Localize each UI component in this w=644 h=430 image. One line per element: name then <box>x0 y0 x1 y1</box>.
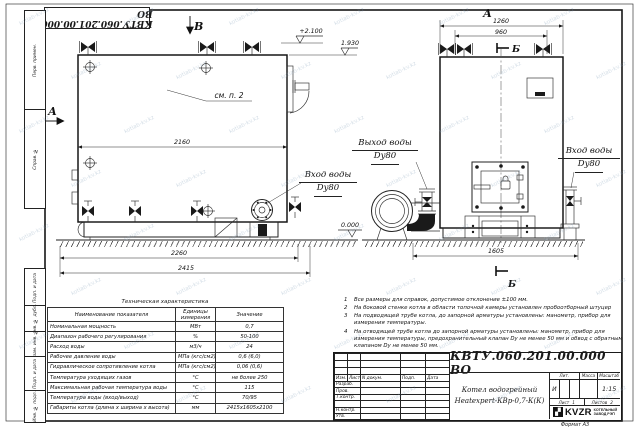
dim-side-base: 1605 <box>488 248 504 255</box>
door-hinge-icon <box>517 175 523 180</box>
view-b-label: В <box>193 20 203 33</box>
view-a-left-label: А <box>47 105 57 118</box>
note-item: 4На отводящей трубе котла до запорной ар… <box>344 329 626 350</box>
margin-box: Подп. и дата <box>24 268 46 307</box>
side-base <box>443 216 560 238</box>
lifting-mark-icon <box>83 60 97 74</box>
mass-label: Масса <box>580 373 599 379</box>
dim-side-top: 1260 <box>493 18 509 25</box>
lit-cell <box>570 380 580 398</box>
doc-number: КВТУ.060.201.00.000 ВО <box>449 353 620 373</box>
logo-text: KVZR <box>565 407 592 418</box>
margin-box: Инв. № подл. <box>24 390 46 423</box>
margin-box: Перв. примен. <box>24 10 46 111</box>
sheet-value: 1 <box>572 400 575 405</box>
drawing-sheet: 2160 2260 2415 +2.100 1.930 0.000 см. п. <box>0 0 644 430</box>
table-row: Номинальная мощностьМВт0,7 <box>48 322 284 332</box>
product-name-line1: Котел водогрейный <box>462 385 538 396</box>
section-b-top-label: Б <box>511 44 520 55</box>
format-label: Формат А3 <box>528 422 622 428</box>
drain-valve-icon <box>191 201 203 222</box>
tech-col-header: Значение <box>216 308 284 322</box>
revision-row <box>335 361 450 368</box>
sheets-value: 2 <box>610 400 613 405</box>
drain-valve-icon <box>129 201 141 222</box>
tech-table-title: Техническая характеристика <box>47 299 283 305</box>
rev-col: Подп. <box>401 375 426 382</box>
margin-label: Справ. № <box>33 148 38 170</box>
scale-value: 1:15 <box>598 380 620 398</box>
table-row: Температура уходящих газов°Сне более 250 <box>48 372 284 382</box>
inlet-side-label: Вход воды Dy80 <box>558 146 620 173</box>
rev-col: Дата <box>426 375 450 382</box>
see-note-callout: см. п. 2 <box>215 91 244 100</box>
dim-front-top: 2160 <box>174 139 190 146</box>
lifting-mark-icon <box>201 204 215 218</box>
section-b-bottom-label: Б <box>507 279 516 290</box>
sheet-label: Лист <box>559 400 570 405</box>
corner-stamp: КВТУ.060.201.00.000 ВО <box>44 7 150 29</box>
lit-value: И <box>550 380 560 398</box>
port-label-title: Вход воды <box>299 170 357 183</box>
port-label-dn: Dy80 <box>371 151 399 164</box>
table-row: Габариты котла (длина х ширина х высота)… <box>48 403 284 413</box>
safety-fitting-icon <box>456 43 473 57</box>
margin-label: Инв. № подл. <box>33 391 38 422</box>
dim-front-total: 2415 <box>178 265 194 272</box>
elevation-mark: +2.100 <box>281 28 323 43</box>
revision-row <box>335 354 450 361</box>
lifting-mark-icon <box>199 61 213 75</box>
lit-cell <box>560 380 570 398</box>
revision-row <box>335 368 450 375</box>
port-label-dn: Dy80 <box>314 183 342 196</box>
tech-table-header-row: Наименование показателя Единицы измерени… <box>48 308 284 322</box>
title-block-signatures: Изм. Лист N докум. Подп. Дата Разраб. Пр… <box>334 353 449 420</box>
port-label-title: Вход воды <box>558 146 620 159</box>
table-row: Расход водым3/ч24 <box>48 342 284 352</box>
note-item: 2На боковой стенке котла в области топоч… <box>344 305 626 312</box>
safety-fitting-icon <box>199 41 216 55</box>
sign-row: Утв. <box>335 413 450 419</box>
product-name: Котел водогрейный Heatexpert-КВр-0,7-К(К… <box>449 373 549 419</box>
dim-side-inner: 960 <box>495 29 507 36</box>
mass-value <box>580 380 599 398</box>
port-label-title: Выход воды <box>352 138 418 151</box>
margin-label: Перв. примен. <box>33 44 38 77</box>
safety-fitting-icon <box>80 41 97 55</box>
outlet-pipe <box>407 189 436 231</box>
view-a-top-label: А <box>482 7 492 20</box>
elevation-flue: 1.930 <box>341 40 359 47</box>
door-hinge-icon <box>517 194 523 199</box>
scale-label: Масштаб <box>598 373 620 379</box>
elevation-mark: 0.000 <box>338 222 362 237</box>
corner-stamp-text: КВТУ.060.201.00.000 ВО <box>41 8 152 28</box>
margin-box: Взам. инв. № <box>24 331 46 358</box>
safety-fitting-icon <box>535 43 552 57</box>
rev-col: Изм. <box>335 375 348 382</box>
title-block: Изм. Лист N докум. Подп. Дата Разраб. Пр… <box>333 352 622 421</box>
port-label-dn: Dy80 <box>575 159 603 172</box>
inlet-front-label: Вход воды Dy80 <box>299 170 357 197</box>
note-item: 3На подводящей трубе котла, до запорной … <box>344 313 626 327</box>
inlet-flange-icon <box>252 200 273 221</box>
elevation-zero: 0.000 <box>341 222 359 229</box>
logo-subtext: ЗАВОД РЭП <box>594 412 617 416</box>
margin-label: Подп. и дата <box>33 359 38 389</box>
note-item: 1Все размеры для справок, допустимое отк… <box>344 297 626 304</box>
lifting-mark-icon <box>83 156 97 170</box>
table-row: Гидравлическое сопротивление котлаМПа (к… <box>48 362 284 372</box>
logo-icon: ▞ <box>553 407 563 417</box>
door-handle-icon <box>474 185 490 189</box>
flue-outlet <box>287 66 309 113</box>
tech-col-header: Наименование показателя <box>48 308 176 322</box>
rev-col: N докум. <box>361 375 401 382</box>
lit-label: Лит. <box>550 373 580 379</box>
safety-fitting-icon <box>439 43 456 57</box>
ground-hatch <box>363 241 583 247</box>
notes-list: 1Все размеры для справок, допустимое отк… <box>344 297 626 351</box>
sheets-cell: Листов 2 <box>585 399 620 405</box>
title-block-right: Лит. Масса Масштаб И 1:15 Лист 1 Листов … <box>549 373 620 419</box>
table-row: Диапазон рабочего регулирования%50-100 <box>48 332 284 342</box>
tech-table-body: Номинальная мощностьМВт0,7Диапазон рабоч… <box>48 322 284 414</box>
table-row: Рабочее давление водыМПа (кгс/см2)0,6 (6… <box>48 352 284 362</box>
sheet-cell: Лист 1 <box>550 399 585 405</box>
safety-fitting-icon <box>244 41 261 55</box>
inlet-pipe <box>561 187 581 240</box>
sheets-label: Листов <box>592 400 608 405</box>
furnace-door <box>472 162 528 212</box>
margin-box: Справ. № <box>24 109 46 209</box>
tech-table: Техническая характеристика Наименование … <box>47 299 283 414</box>
control-box <box>527 78 553 98</box>
revision-header-row: Изм. Лист N докум. Подп. Дата <box>335 375 450 382</box>
dim-front-mid: 2260 <box>171 250 187 257</box>
table-row: Температура воды (вход/выход)°С70/95 <box>48 393 284 403</box>
ground-hatch <box>58 241 356 247</box>
rev-col: Лист <box>348 375 361 382</box>
outlet-side-label: Выход воды Dy80 <box>352 138 418 165</box>
product-name-line2: Heatexpert-КВр-0,7-К(К) <box>455 396 545 407</box>
tech-col-header: Единицы измерения <box>176 308 216 322</box>
lock-icon <box>501 176 510 189</box>
company-logo: ▞ KVZR КОТЕЛЬНЫЙ ЗАВОД РЭП <box>550 406 620 418</box>
elevation-top: +2.100 <box>299 28 322 35</box>
front-view: 2160 2260 2415 +2.100 1.930 0.000 см. п. <box>45 16 362 277</box>
table-row: Максимальная рабочая температура воды°С1… <box>48 383 284 393</box>
margin-label: Подп. и дата <box>33 273 38 303</box>
margin-box: Подп. и дата <box>24 356 46 392</box>
side-valve-icon <box>289 197 301 218</box>
drain-valve-icon <box>82 201 94 222</box>
